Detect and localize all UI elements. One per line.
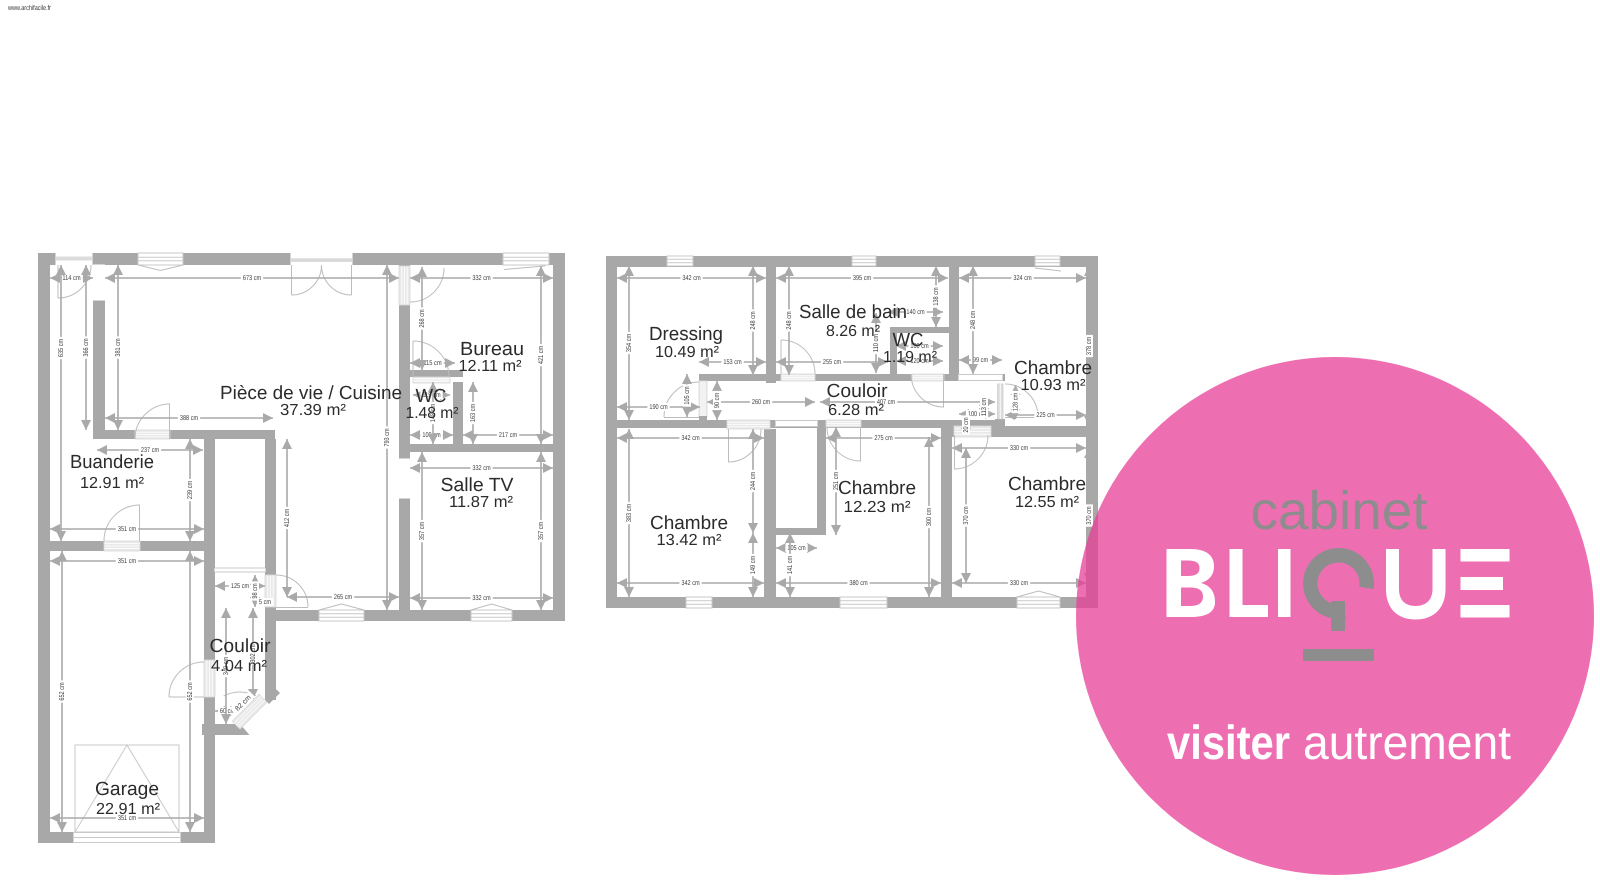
svg-text:8.26 m²: 8.26 m² — [826, 323, 881, 340]
svg-text:412 cm: 412 cm — [284, 509, 291, 527]
svg-text:370 cm: 370 cm — [1086, 506, 1093, 524]
svg-text:Chambre: Chambre — [838, 478, 916, 499]
svg-text:Chambre: Chambre — [1014, 358, 1092, 379]
svg-text:330 cm: 330 cm — [1010, 445, 1028, 452]
svg-text:366 cm: 366 cm — [83, 338, 90, 356]
svg-text:138 cm: 138 cm — [933, 287, 940, 305]
svg-text:113 cm: 113 cm — [981, 398, 988, 416]
svg-text:388 cm: 388 cm — [180, 415, 198, 422]
svg-text:673 cm: 673 cm — [243, 275, 261, 282]
svg-text:239 cm: 239 cm — [187, 481, 194, 499]
svg-text:268 cm: 268 cm — [419, 309, 426, 327]
svg-text:20 cm: 20 cm — [963, 417, 970, 432]
svg-text:22.91 m²: 22.91 m² — [96, 801, 161, 818]
svg-text:248 cm: 248 cm — [970, 311, 977, 329]
svg-text:332 cm: 332 cm — [472, 275, 490, 282]
svg-text:13.42 m²: 13.42 m² — [657, 532, 723, 549]
svg-text:153 cm: 153 cm — [723, 359, 741, 366]
svg-text:351 cm: 351 cm — [118, 526, 136, 533]
svg-text:128 cm: 128 cm — [1013, 393, 1020, 411]
svg-text:125 cm: 125 cm — [231, 583, 249, 590]
svg-text:Garage: Garage — [95, 779, 159, 800]
svg-text:114 cm: 114 cm — [62, 275, 80, 282]
svg-text:140 cm: 140 cm — [906, 309, 924, 316]
svg-text:248 cm: 248 cm — [786, 311, 793, 329]
svg-text:342 cm: 342 cm — [682, 275, 700, 282]
svg-text:11.87 m²: 11.87 m² — [449, 494, 514, 511]
svg-text:Salle TV: Salle TV — [441, 475, 514, 496]
svg-text:www.archifacile.fr: www.archifacile.fr — [7, 4, 51, 12]
svg-text:248 cm: 248 cm — [750, 311, 757, 329]
svg-text:Chambre: Chambre — [1008, 474, 1086, 495]
svg-text:12.23 m²: 12.23 m² — [844, 499, 912, 516]
svg-text:autrement: autrement — [1303, 717, 1511, 770]
svg-text:370 cm: 370 cm — [963, 506, 970, 524]
svg-text:351 cm: 351 cm — [118, 558, 136, 565]
svg-text:141 cm: 141 cm — [787, 556, 794, 574]
svg-text:149 cm: 149 cm — [750, 556, 757, 574]
svg-text:324 cm: 324 cm — [1013, 275, 1031, 282]
svg-text:190 cm: 190 cm — [649, 404, 667, 411]
svg-text:342 cm: 342 cm — [681, 580, 699, 587]
svg-text:12.11 m²: 12.11 m² — [459, 358, 523, 375]
svg-text:300 cm: 300 cm — [926, 508, 933, 526]
svg-text:357 cm: 357 cm — [538, 522, 545, 540]
svg-text:visiter: visiter — [1167, 717, 1290, 770]
svg-text:1.19 m²: 1.19 m² — [883, 349, 938, 366]
svg-text:Dressing: Dressing — [649, 324, 723, 345]
svg-text:Couloir: Couloir — [210, 636, 272, 657]
svg-text:6.28 m²: 6.28 m² — [828, 402, 885, 419]
svg-text:260 cm: 260 cm — [752, 399, 770, 406]
svg-text:275 cm: 275 cm — [874, 435, 892, 442]
svg-text:354 cm: 354 cm — [626, 334, 633, 352]
svg-text:12.91 m²: 12.91 m² — [80, 475, 145, 492]
svg-text:98 cm: 98 cm — [252, 583, 259, 598]
svg-text:Buanderie: Buanderie — [70, 452, 154, 473]
svg-text:12.55 m²: 12.55 m² — [1015, 494, 1080, 511]
svg-text:380 cm: 380 cm — [849, 580, 867, 587]
svg-text:244 cm: 244 cm — [750, 472, 757, 490]
svg-text:99 cm: 99 cm — [973, 357, 988, 364]
svg-text:Pièce de vie / Cuisine: Pièce de vie / Cuisine — [220, 383, 402, 404]
svg-text:342 cm: 342 cm — [681, 435, 699, 442]
svg-text:217 cm: 217 cm — [499, 432, 517, 439]
svg-text:381 cm: 381 cm — [115, 338, 122, 356]
svg-text:652 cm: 652 cm — [187, 682, 194, 700]
svg-text:265 cm: 265 cm — [334, 594, 352, 601]
svg-text:357 cm: 357 cm — [419, 522, 426, 540]
svg-text:Couloir: Couloir — [827, 381, 889, 402]
svg-text:635 cm: 635 cm — [58, 339, 65, 357]
svg-text:90 cm: 90 cm — [714, 393, 721, 408]
svg-text:Chambre: Chambre — [650, 513, 728, 534]
svg-text:378 cm: 378 cm — [1086, 337, 1093, 355]
svg-text:4.04 m²: 4.04 m² — [211, 658, 268, 675]
svg-text:Salle de bain: Salle de bain — [799, 302, 907, 323]
svg-text:WC: WC — [893, 330, 924, 351]
svg-text:cabinet: cabinet — [1251, 481, 1428, 541]
svg-text:163 cm: 163 cm — [470, 404, 477, 422]
svg-text:5 cm: 5 cm — [259, 599, 271, 606]
svg-text:Bureau: Bureau — [460, 339, 524, 360]
svg-text:652 cm: 652 cm — [59, 682, 66, 700]
svg-text:255 cm: 255 cm — [823, 359, 841, 366]
svg-text:WC: WC — [416, 386, 447, 407]
svg-text:421 cm: 421 cm — [538, 346, 545, 364]
svg-text:332 cm: 332 cm — [472, 595, 490, 602]
svg-text:332 cm: 332 cm — [472, 465, 490, 472]
svg-text:37.39 m²: 37.39 m² — [280, 402, 347, 419]
svg-text:105 cm: 105 cm — [684, 386, 691, 404]
svg-text:10.93 m²: 10.93 m² — [1021, 377, 1087, 394]
svg-text:793 cm: 793 cm — [384, 428, 391, 446]
svg-text:395 cm: 395 cm — [853, 275, 871, 282]
svg-text:10.49 m²: 10.49 m² — [655, 344, 720, 361]
svg-text:330 cm: 330 cm — [1010, 580, 1028, 587]
svg-text:1.48 m²: 1.48 m² — [406, 405, 460, 422]
svg-text:383 cm: 383 cm — [626, 504, 633, 522]
svg-text:225 cm: 225 cm — [1036, 412, 1054, 419]
